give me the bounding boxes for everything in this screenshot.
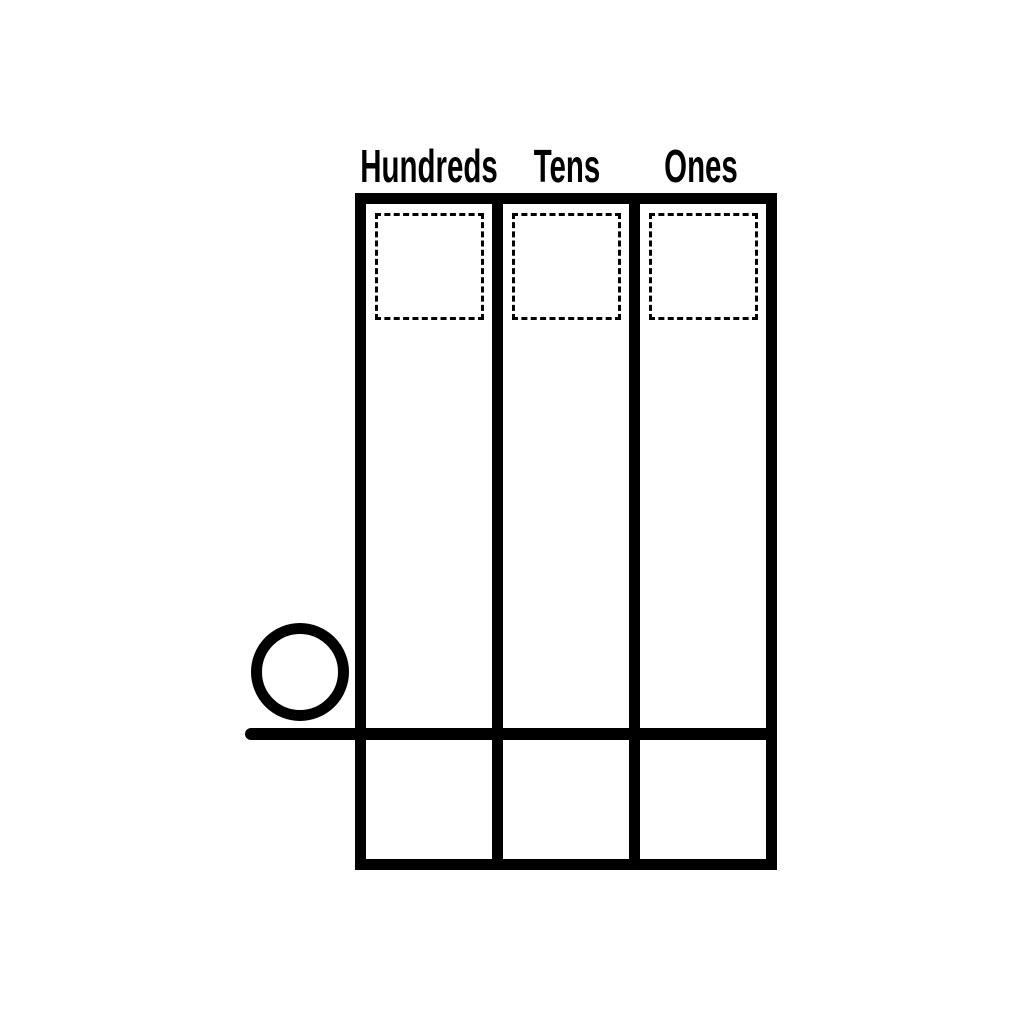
- sum-line: [245, 728, 777, 740]
- column-header-hundreds: Hundreds: [359, 143, 500, 189]
- answer-cell-tens[interactable]: [503, 740, 629, 859]
- column-header-ones: Ones: [631, 143, 772, 189]
- regroup-circle-icon[interactable]: [251, 623, 349, 721]
- place-value-chart-frame: [355, 193, 777, 870]
- worksheet-canvas: Hundreds Tens Ones: [0, 0, 1024, 1024]
- tens-dropzone-dashed-square-icon[interactable]: [512, 213, 621, 320]
- column-ones[interactable]: [640, 204, 766, 859]
- column-divider-right: [629, 204, 640, 859]
- column-hundreds[interactable]: [366, 204, 492, 859]
- hundreds-dropzone-dashed-square-icon[interactable]: [375, 213, 484, 320]
- column-header-tens: Tens: [497, 143, 638, 189]
- column-divider-left: [492, 204, 503, 859]
- column-tens[interactable]: [503, 204, 629, 859]
- answer-cell-ones[interactable]: [640, 740, 766, 859]
- answer-cell-hundreds[interactable]: [366, 740, 492, 859]
- ones-dropzone-dashed-square-icon[interactable]: [649, 213, 758, 320]
